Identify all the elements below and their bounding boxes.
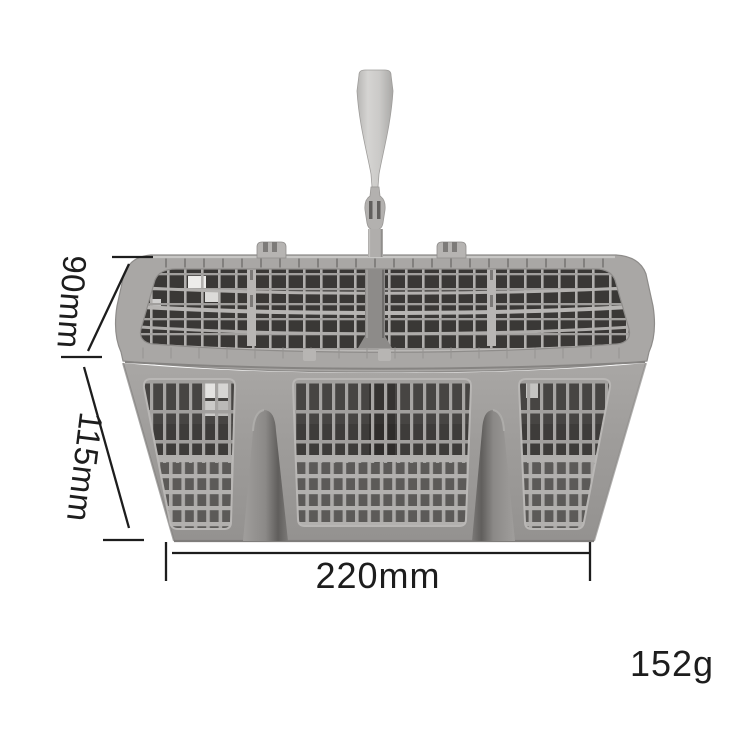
- handle-blade: [357, 70, 393, 187]
- basket-body: [123, 363, 646, 541]
- window-center: [290, 375, 475, 534]
- basket-illustration: [0, 0, 750, 750]
- handle-group: [357, 70, 393, 257]
- product-dimension-image: 90mm 115mm 220mm 152g: [0, 0, 750, 750]
- rim-tab: [303, 349, 316, 361]
- rim-tab: [378, 349, 391, 361]
- mount-clip-right: [437, 242, 466, 258]
- handle-knuckle: [365, 187, 385, 230]
- mount-clip-left: [257, 242, 286, 258]
- dimension-label-width: 220mm: [315, 558, 440, 594]
- weight-label: 152g: [630, 646, 714, 682]
- dimension-label-rim-height: 90mm: [52, 254, 91, 350]
